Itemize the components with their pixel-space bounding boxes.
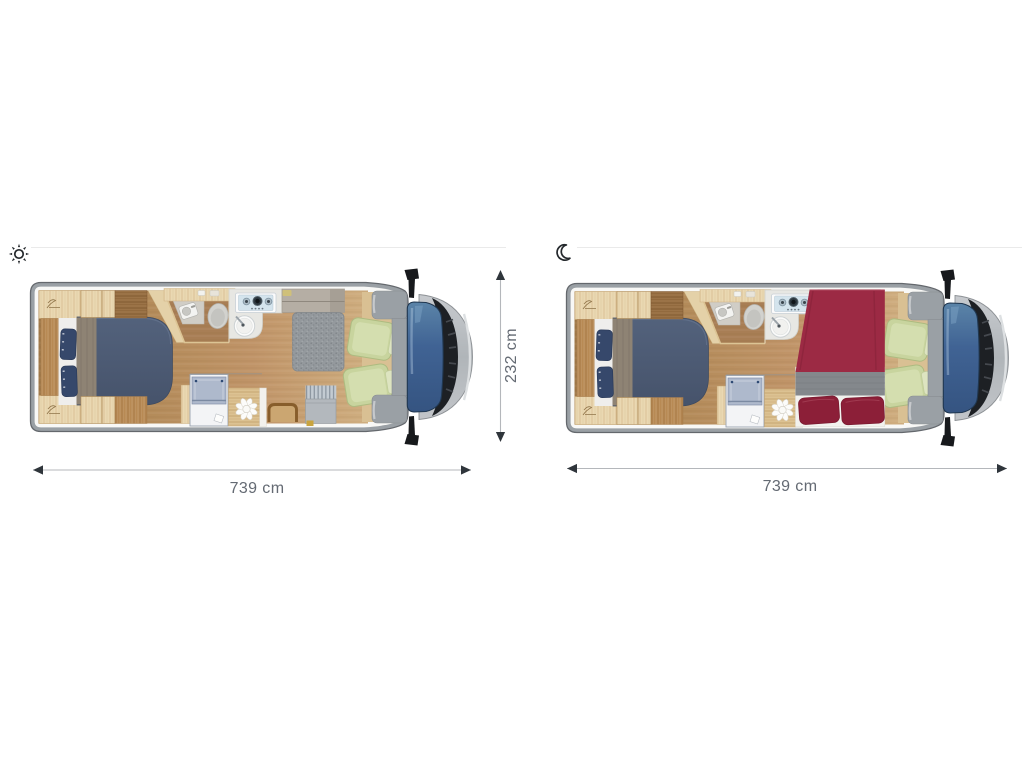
svg-text:232 cm: 232 cm [503, 328, 520, 383]
svg-text:739 cm: 739 cm [230, 480, 285, 497]
svg-text:739 cm: 739 cm [763, 478, 818, 495]
